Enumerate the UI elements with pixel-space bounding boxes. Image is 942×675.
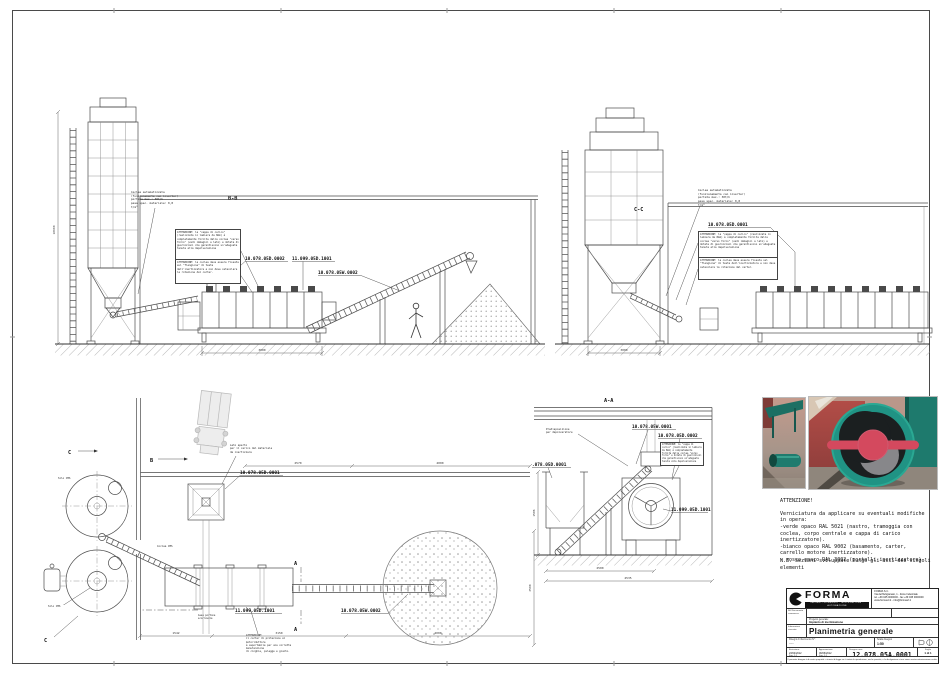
view-bb: B-B: [52, 98, 545, 356]
part-label: 10.078.05D.0001: [240, 470, 280, 476]
nb-note: N.B. Sezioni sviluppate lungo gli assi d…: [780, 558, 940, 571]
plan-note-portone: Asse portone scorrevole: [198, 614, 226, 620]
reference-drawings-cell: Disegni di riferimento N°: -----: [787, 638, 874, 647]
part-label: 10.078.05D.0002: [658, 433, 698, 439]
bb-silo: [87, 98, 139, 344]
section-marker-a2: A: [294, 627, 298, 633]
projection-method-icon: [918, 639, 934, 646]
dim-text: 2500: [528, 584, 532, 591]
part-label: .078.05D.0001: [532, 462, 567, 468]
aa-note-depolveratore: Predisposizione per depolveratore: [546, 428, 580, 435]
view-plan: 10.078.05D.0001 C C B A A: [44, 390, 536, 647]
plan-screw: [99, 534, 201, 587]
company-logo-cell: FORMA IMPIANTI DOSAGGIO · MISCELAZIONE ·…: [787, 589, 871, 608]
cc-ladder: [562, 150, 568, 344]
aa-hopper: [542, 472, 588, 555]
dim-text: 4000: [436, 461, 443, 465]
part-label: 11.099.05D.1001: [292, 256, 332, 262]
part-label: 11.099.05D.1001: [235, 608, 275, 614]
approval-cell: Approvazione: 06/06/2012 Fog. 1:1: [816, 648, 846, 656]
section-title-bb: B-B: [228, 196, 237, 202]
company-info: FORMA S.r.l. Via dell'Artigianato, 1 - Z…: [871, 589, 938, 608]
paint-warning-body: Verniciatura da applicare su eventuali m…: [780, 511, 940, 564]
section-title-cc: C-C: [634, 207, 643, 213]
projection-symbol-cell: [913, 638, 938, 647]
scale-value: 1:50: [877, 642, 911, 646]
title-block: FORMA IMPIANTI DOSAGGIO · MISCELAZIONE ·…: [786, 588, 939, 664]
bb-stockpile: [432, 284, 540, 344]
dim-text: 10600: [52, 225, 56, 234]
part-label: 10.078.05D.0002: [245, 256, 285, 262]
section-marker-c2: C: [44, 638, 47, 644]
part-label: 10.078.05W.0002: [341, 608, 381, 614]
view-aa: A-A 10.078.05W.0001 10.078.05D.0002 .078…: [532, 398, 714, 583]
plan-hopper: [188, 484, 224, 634]
bb-note-coclea: Coclea automatizzata (funzionamento con …: [131, 191, 179, 209]
bb-screw: [110, 296, 198, 318]
cc-machine-train: [752, 289, 932, 342]
aa-inertizer-wheel: [622, 420, 680, 555]
drawing-canvas: B-B: [0, 0, 942, 675]
photo-inertizer-side: [762, 397, 806, 489]
part-label: 11.099.05D.1001: [671, 507, 711, 513]
plan-machine-train: [165, 565, 293, 609]
photo-inertizer-drum-image: [809, 397, 937, 489]
title-block-title-row: Informazioni riservate: Planimetria gene…: [787, 624, 938, 637]
client-cell: Nome e Cliente: -----: [807, 609, 891, 617]
plan-note-lato-aperto: Lato aperto per il carico del materiale …: [230, 444, 276, 454]
bb-attention-note-1: ATTENZIONE: la "cappa di carico" (realiz…: [175, 229, 241, 260]
dim-text: 2570: [294, 461, 301, 465]
refs-value: -----: [789, 642, 872, 645]
scale-cell: Scala disegno 1:50: [874, 638, 913, 647]
cc-note-coclea: Coclea automatizzata (funzionamento con …: [698, 189, 746, 207]
title-block-header-row: FORMA IMPIANTI DOSAGGIO · MISCELAZIONE ·…: [787, 589, 938, 608]
title-block-ref-row: Rif./Documento commessa: Nome e Cliente:…: [787, 608, 938, 624]
section-marker-b: B: [150, 458, 153, 464]
plan-coclea-label: Coclea CMS: [157, 545, 187, 548]
bb-attention-note-2: ATTENZIONE: la coclea deve essere fissat…: [175, 259, 241, 284]
title-block-approval-row: Emissione: 23/04/2012 Fog. 1:1 Approvazi…: [787, 647, 938, 656]
aa-attention-note: ATTENZIONE: la "cappa di carico" (realiz…: [660, 442, 704, 466]
section-marker-c: C: [68, 450, 71, 456]
cc-attention-note-2: ATTENZIONE: la coclea deve essere fissat…: [698, 257, 778, 280]
bb-ladder: [70, 128, 76, 344]
title-block-disclaimer: Il presente disegno è di nostra propriet…: [787, 656, 938, 663]
part-label: 10.078.05D.0001: [708, 222, 748, 228]
paint-warning-title: ATTENZIONE!: [780, 498, 940, 505]
location-cell: Località: ---: [891, 609, 938, 617]
cc-attention-note-1: ATTENZIONE: la "cappa di carico" (realiz…: [698, 231, 778, 258]
photo-inertizer-side-image: [763, 398, 805, 488]
drawing-title: Planimetria generale: [807, 627, 893, 636]
sheet-value: 1 di 1: [920, 652, 936, 655]
cc-ground: [555, 344, 930, 356]
dim-text: 1586: [532, 509, 536, 516]
plan-silo2-label: Silo CMS: [48, 605, 68, 608]
section-title-aa: A-A: [604, 398, 614, 404]
bb-ground: [55, 344, 545, 356]
dim-text: 4535: [624, 576, 631, 580]
plan-silo1-label: Silo CMS: [58, 477, 78, 480]
cc-screw: [630, 293, 718, 330]
photo-inertizer-drum: [808, 396, 938, 490]
bb-part-labels: 10.078.05D.0002 11.099.05D.1001 10.078.0…: [222, 256, 400, 291]
project-cell: Progetto generale: Impianto di inertizza…: [807, 617, 938, 625]
dim-text: 4000: [434, 631, 441, 635]
company-brand: FORMA: [805, 590, 869, 601]
part-label: 10.078.05W.0002: [318, 270, 358, 276]
sheet-cell: Foglio 1 di 1: [917, 648, 938, 656]
forma-logo-icon: [789, 592, 803, 606]
issue-cell: Emissione: 23/04/2012 Fog. 1:1: [787, 648, 816, 656]
aa-belt: [555, 466, 652, 555]
plan-truck: [192, 390, 232, 456]
aa-ground: [534, 555, 712, 566]
dim-text: 3000: [620, 348, 627, 352]
drawing-sheet: B-B: [0, 0, 942, 675]
section-marker-a: A: [294, 561, 298, 567]
part-label: 10.078.05W.0001: [632, 424, 672, 430]
dim-text: 3000: [258, 348, 265, 352]
dim-text: 1542: [172, 631, 179, 635]
dim-text: 2500: [596, 566, 603, 570]
bb-person-figure: [409, 303, 423, 338]
drawing-number-cell: Disegno num.: 12.078.05A.0001 2: [846, 648, 917, 656]
ref-label: Rif./Documento commessa:: [787, 609, 807, 624]
plan-silo1: [62, 471, 132, 541]
plan-attention-carter: ATTENZIONE: il carter di protezione al m…: [246, 634, 306, 654]
info-label: Informazioni riservate:: [787, 625, 807, 637]
plan-stock-circle: [383, 531, 497, 645]
title-block-refs-row: Disegni di riferimento N°: ----- Scala d…: [787, 637, 938, 647]
